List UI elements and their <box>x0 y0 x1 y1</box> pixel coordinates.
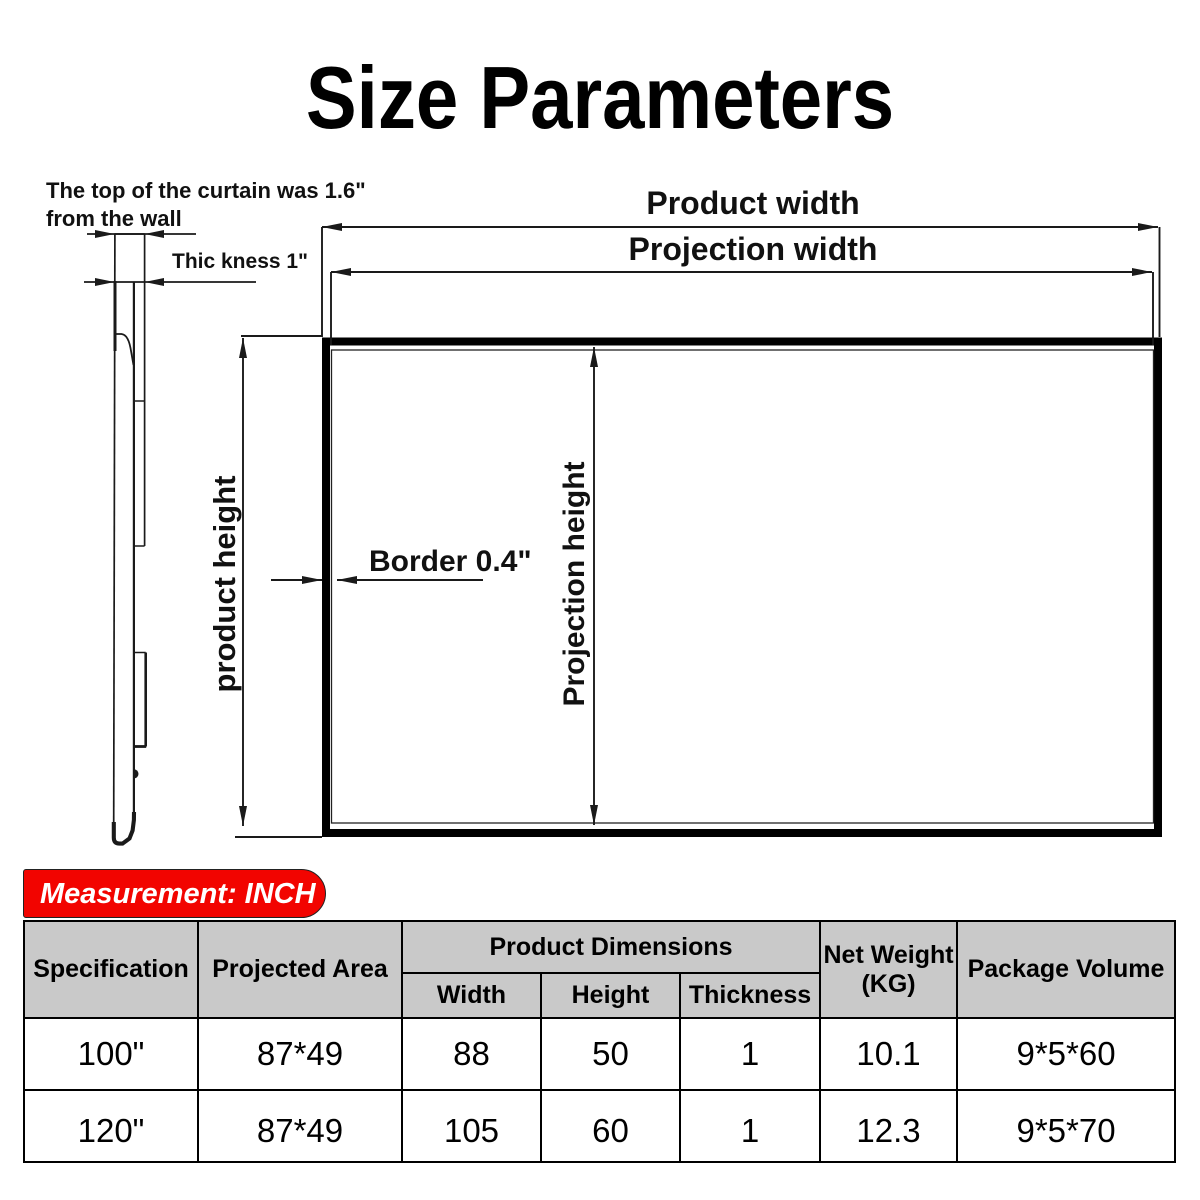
svg-text:Projection width: Projection width <box>629 231 878 267</box>
svg-text:from the wall: from the wall <box>46 206 182 231</box>
svg-text:Projection height: Projection height <box>558 461 591 706</box>
svg-text:The top of the curtain was 1.6: The top of the curtain was 1.6" <box>46 178 366 203</box>
svg-text:Product width: Product width <box>646 185 859 221</box>
svg-text:Thic kness 1": Thic kness 1" <box>172 250 308 273</box>
svg-text:Border 0.4": Border 0.4" <box>369 545 532 578</box>
svg-text:product height: product height <box>207 476 242 693</box>
